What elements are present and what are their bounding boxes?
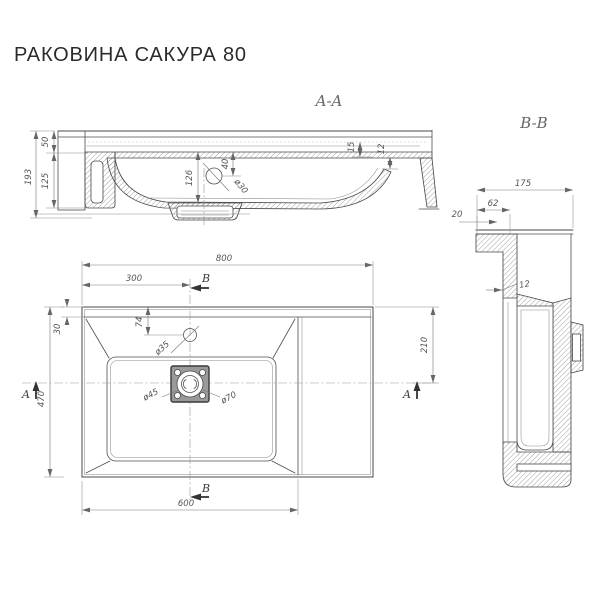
- dim-text: 74: [135, 317, 145, 328]
- cut-label-a: A: [402, 388, 411, 401]
- bowl-cavity: [517, 306, 553, 450]
- drain-screw: [200, 393, 206, 399]
- dim-text: 800: [216, 254, 232, 264]
- dim-text: 12: [518, 279, 530, 291]
- right-wall-cut: [553, 298, 571, 452]
- drawing-page: РАКОВИНА САКУРА 80 A-A: [0, 0, 600, 600]
- bowl-shell-cut: [107, 158, 391, 209]
- section-bb: B-B 175: [452, 114, 583, 487]
- dim-text: 193: [24, 169, 34, 185]
- dim-text: 175: [515, 179, 531, 189]
- overflow-channel: [91, 161, 103, 203]
- dim-126: 126: [185, 152, 198, 203]
- drain-ring-outer: [177, 371, 203, 397]
- section-bb-label: B-B: [519, 114, 547, 132]
- dim-50: 50: [41, 131, 88, 153]
- right-leg-cut: [420, 158, 437, 207]
- cut-label-b: B: [201, 482, 210, 495]
- dim-30: 30: [53, 299, 84, 334]
- slope-line-bl: [86, 461, 110, 473]
- dim-text: 600: [178, 499, 194, 509]
- dim-drain-outer: ø70: [219, 390, 239, 407]
- left-apron-outline: [58, 131, 85, 210]
- dim-text: 62: [488, 199, 499, 209]
- slope-line-tl: [86, 319, 109, 358]
- section-cut-marker-a-right: A: [402, 381, 421, 401]
- drain-assembly: [171, 366, 209, 402]
- dim-20: 20: [452, 210, 497, 236]
- cut-arrow-head: [414, 381, 421, 391]
- cut-arrow-head: [33, 381, 40, 391]
- section-aa: A-A: [24, 92, 439, 227]
- drain-screw: [200, 370, 206, 376]
- dim-text: 15: [347, 142, 357, 153]
- drain-sump-cavity: [177, 206, 233, 218]
- overflow-hole: [206, 168, 222, 184]
- dim-text: 12: [377, 144, 387, 155]
- technical-drawing: A-A: [0, 0, 600, 600]
- sink-outline: [82, 307, 373, 477]
- cut-arrow-head: [190, 285, 201, 292]
- dim-text: 125: [41, 173, 51, 189]
- slope-line-tr: [273, 319, 295, 358]
- bracket-slot: [573, 334, 581, 361]
- drain-channel-slot: [517, 464, 571, 471]
- sink-inner-edge: [85, 310, 371, 475]
- section-cut-marker-b-top: B: [190, 272, 210, 292]
- section-cut-marker-a-left: A: [21, 381, 40, 401]
- dim-74: 74: [135, 307, 184, 335]
- dim-faucet-dia: ø35: [153, 339, 172, 358]
- dim-overflow-dia: ø30: [231, 177, 250, 196]
- plan-view: ø35 74 ø45 ø70: [21, 254, 439, 515]
- dim-text: 470: [37, 391, 47, 407]
- slope-line-br: [272, 461, 295, 473]
- dim-drain-inner: ø45: [141, 387, 161, 404]
- dim-text: 20: [452, 210, 463, 220]
- section-aa-label: A-A: [314, 92, 343, 110]
- dim-62: 62: [477, 199, 510, 234]
- dim-text: 40: [221, 159, 231, 170]
- dim-text: 210: [420, 337, 430, 353]
- dim-text: 30: [53, 324, 63, 335]
- section-cut-marker-b-bottom: B: [190, 482, 210, 501]
- cut-label-a: A: [21, 388, 30, 401]
- dim-300: 300: [82, 274, 190, 285]
- drain-screw: [175, 393, 181, 399]
- dim-text: 50: [41, 137, 51, 148]
- dim-125: 125: [41, 153, 90, 208]
- top-hook-cut: [476, 234, 517, 298]
- dim-210: 210: [375, 307, 439, 383]
- dim-text: 300: [126, 274, 142, 284]
- drain-screw: [175, 370, 181, 376]
- cut-label-b: B: [201, 272, 210, 285]
- dim-text: 126: [185, 169, 195, 186]
